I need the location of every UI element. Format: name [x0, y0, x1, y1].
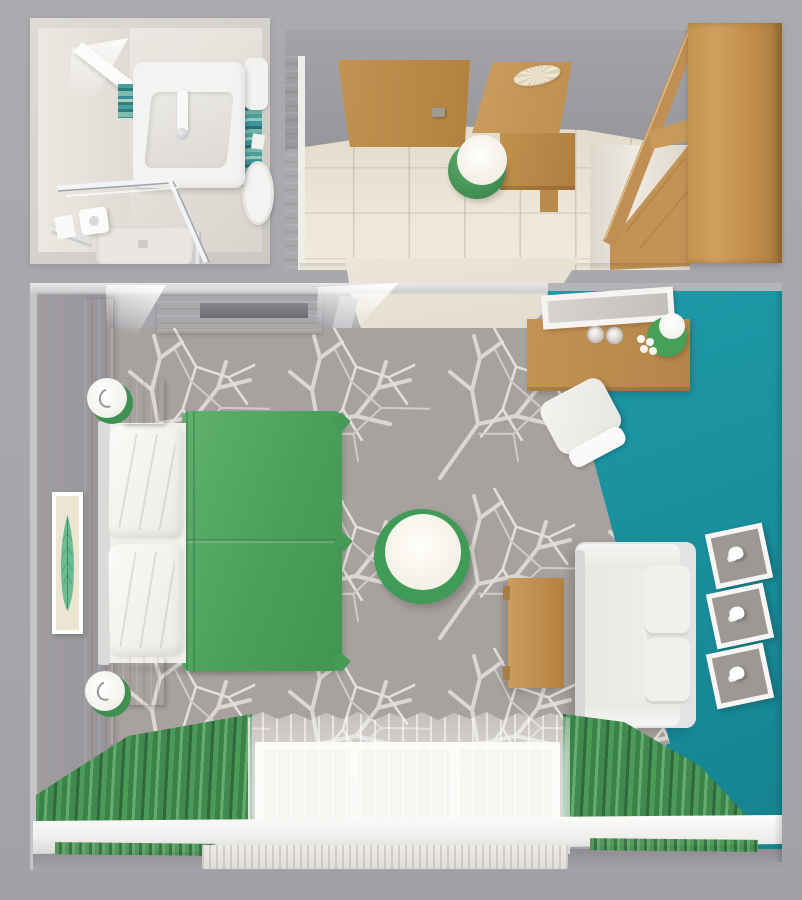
bedside-lamp-top: [87, 378, 127, 418]
table-leg: [503, 586, 510, 600]
table-leg: [503, 666, 510, 680]
curtain-hem: [590, 838, 758, 852]
console-lamp-top: [659, 313, 685, 339]
wall-niche: [706, 583, 774, 650]
sofa-back-cushion: [645, 566, 690, 636]
pillow: [108, 543, 184, 656]
headboard-cushion: [98, 421, 110, 665]
pillow: [108, 426, 183, 539]
curtain-hem: [55, 842, 215, 856]
entry-hall: [285, 23, 790, 270]
lamp-stem-icon: [94, 678, 119, 704]
decor-object: [727, 545, 744, 561]
sofa-seat: [585, 568, 647, 702]
white-flowers: [637, 335, 645, 343]
bathroom: [30, 18, 270, 264]
duvet: [182, 411, 342, 671]
round-table-top: [385, 514, 461, 590]
wall-niche: [706, 643, 774, 710]
drinking-glass: [606, 327, 623, 344]
decor-object: [728, 665, 745, 681]
lamp-stem-icon: [96, 385, 121, 411]
decor-object: [728, 605, 745, 621]
wall-art-frame: [52, 492, 83, 634]
towel: [54, 215, 76, 240]
wall-niche: [705, 523, 773, 590]
sofa: [575, 542, 696, 728]
main-room: [30, 283, 782, 870]
wardrobe: [688, 23, 782, 263]
drinking-glass: [587, 326, 604, 343]
apartment-floor-plan-render: [0, 0, 802, 900]
bedside-lamp-top: [85, 671, 125, 711]
coffee-table: [508, 578, 564, 688]
sofa-edge: [575, 550, 585, 720]
tv: [200, 303, 308, 318]
wall-shadow: [774, 291, 782, 862]
sofa-back-cushion: [645, 638, 690, 704]
shower-glass-frame: [30, 18, 270, 264]
sheer-hem: [202, 845, 568, 869]
leaf-illustration: [56, 496, 79, 630]
